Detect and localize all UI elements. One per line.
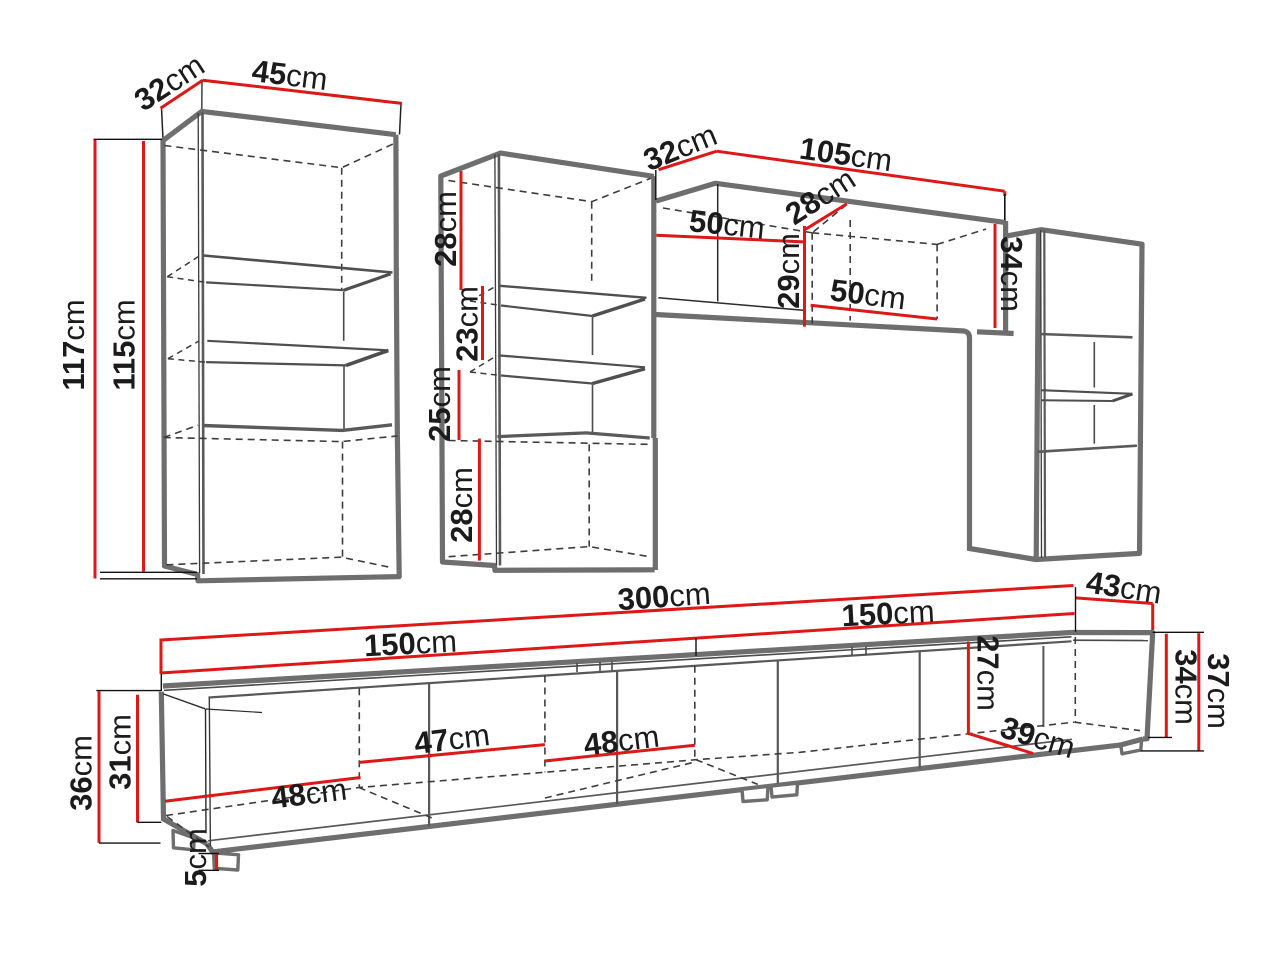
svg-text:115cm: 115cm: [107, 299, 142, 390]
svg-text:117cm: 117cm: [56, 299, 91, 390]
svg-text:23cm: 23cm: [449, 286, 484, 362]
svg-text:50cm: 50cm: [687, 203, 766, 246]
svg-text:300cm: 300cm: [616, 576, 711, 617]
svg-text:28cm: 28cm: [444, 467, 479, 543]
svg-text:5cm: 5cm: [178, 828, 213, 887]
svg-text:150cm: 150cm: [841, 594, 936, 634]
svg-text:48cm: 48cm: [269, 772, 349, 816]
svg-text:45cm: 45cm: [250, 53, 330, 97]
svg-text:31cm: 31cm: [102, 714, 137, 790]
svg-text:29cm: 29cm: [771, 233, 806, 309]
svg-text:32cm: 32cm: [638, 117, 721, 178]
svg-text:150cm: 150cm: [363, 624, 458, 664]
svg-text:36cm: 36cm: [64, 735, 99, 811]
svg-text:43cm: 43cm: [1084, 564, 1164, 610]
svg-text:34cm: 34cm: [994, 236, 1029, 312]
svg-text:37cm: 37cm: [1201, 653, 1236, 729]
svg-text:32cm: 32cm: [128, 47, 211, 118]
svg-text:27cm: 27cm: [970, 635, 1005, 711]
svg-text:47cm: 47cm: [412, 717, 492, 761]
svg-text:34cm: 34cm: [1169, 649, 1204, 725]
svg-text:25cm: 25cm: [422, 366, 457, 442]
svg-text:48cm: 48cm: [582, 719, 662, 763]
svg-text:28cm: 28cm: [428, 191, 463, 267]
